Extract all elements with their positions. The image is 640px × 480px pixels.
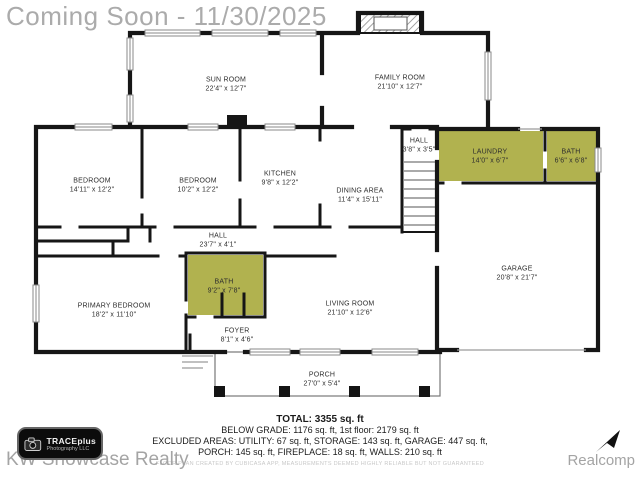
room-label-foyer: FOYER8'1" x 4'6"	[221, 327, 254, 345]
room-label-bedroom-1: BEDROOM14'11" x 12'2"	[70, 177, 115, 195]
camera-icon	[24, 436, 43, 452]
room-label-sun-room: SUN ROOM22'4" x 12'7"	[206, 76, 247, 94]
wall-stub	[227, 115, 247, 127]
room-label-primary-bedroom: PRIMARY BEDROOM18'2" x 11'10"	[78, 302, 151, 320]
logo-name: TRACEplus	[47, 436, 96, 446]
room-label-laundry: LAUNDRY14'0" x 6'7"	[472, 148, 509, 166]
logo-subtitle: Photography LLC	[47, 446, 96, 452]
fireplace-icon	[360, 14, 420, 33]
room-label-dining-area: DINING AREA11'4" x 15'11"	[336, 187, 383, 205]
room-label-family-room: FAMILY ROOM21'10" x 12'7"	[375, 74, 425, 92]
total-area: TOTAL: 3355 sq. ft	[0, 414, 640, 425]
porch-steps	[182, 356, 213, 368]
photographer-logo: TRACEplus Photography LLC	[17, 427, 103, 460]
room-label-bath-upper: BATH6'6" x 6'8"	[555, 148, 588, 166]
realcomp-arrow-icon	[594, 430, 624, 454]
stairs	[402, 162, 437, 232]
highlighted-rooms	[188, 131, 596, 315]
room-label-hall-upper: HALL3'8" x 3'5"	[403, 137, 436, 155]
room-label-living-room: LIVING ROOM21'10" x 12'6"	[326, 300, 375, 318]
room-label-porch: PORCH27'0" x 5'4"	[304, 371, 341, 389]
floorplan-drawing	[0, 0, 640, 480]
room-label-hall-main: HALL23'7" x 4'1"	[200, 232, 237, 250]
room-label-garage: GARAGE20'8" x 21'7"	[497, 265, 538, 283]
room-label-kitchen: KITCHEN9'8" x 12'2"	[262, 170, 299, 188]
floorplan-page: Coming Soon - 11/30/2025	[0, 0, 640, 480]
room-label-bath-main: BATH9'2" x 7'8"	[208, 278, 241, 296]
realcomp-label: Realcomp	[567, 452, 635, 469]
room-label-bedroom-2: BEDROOM10'2" x 12'2"	[178, 177, 219, 195]
